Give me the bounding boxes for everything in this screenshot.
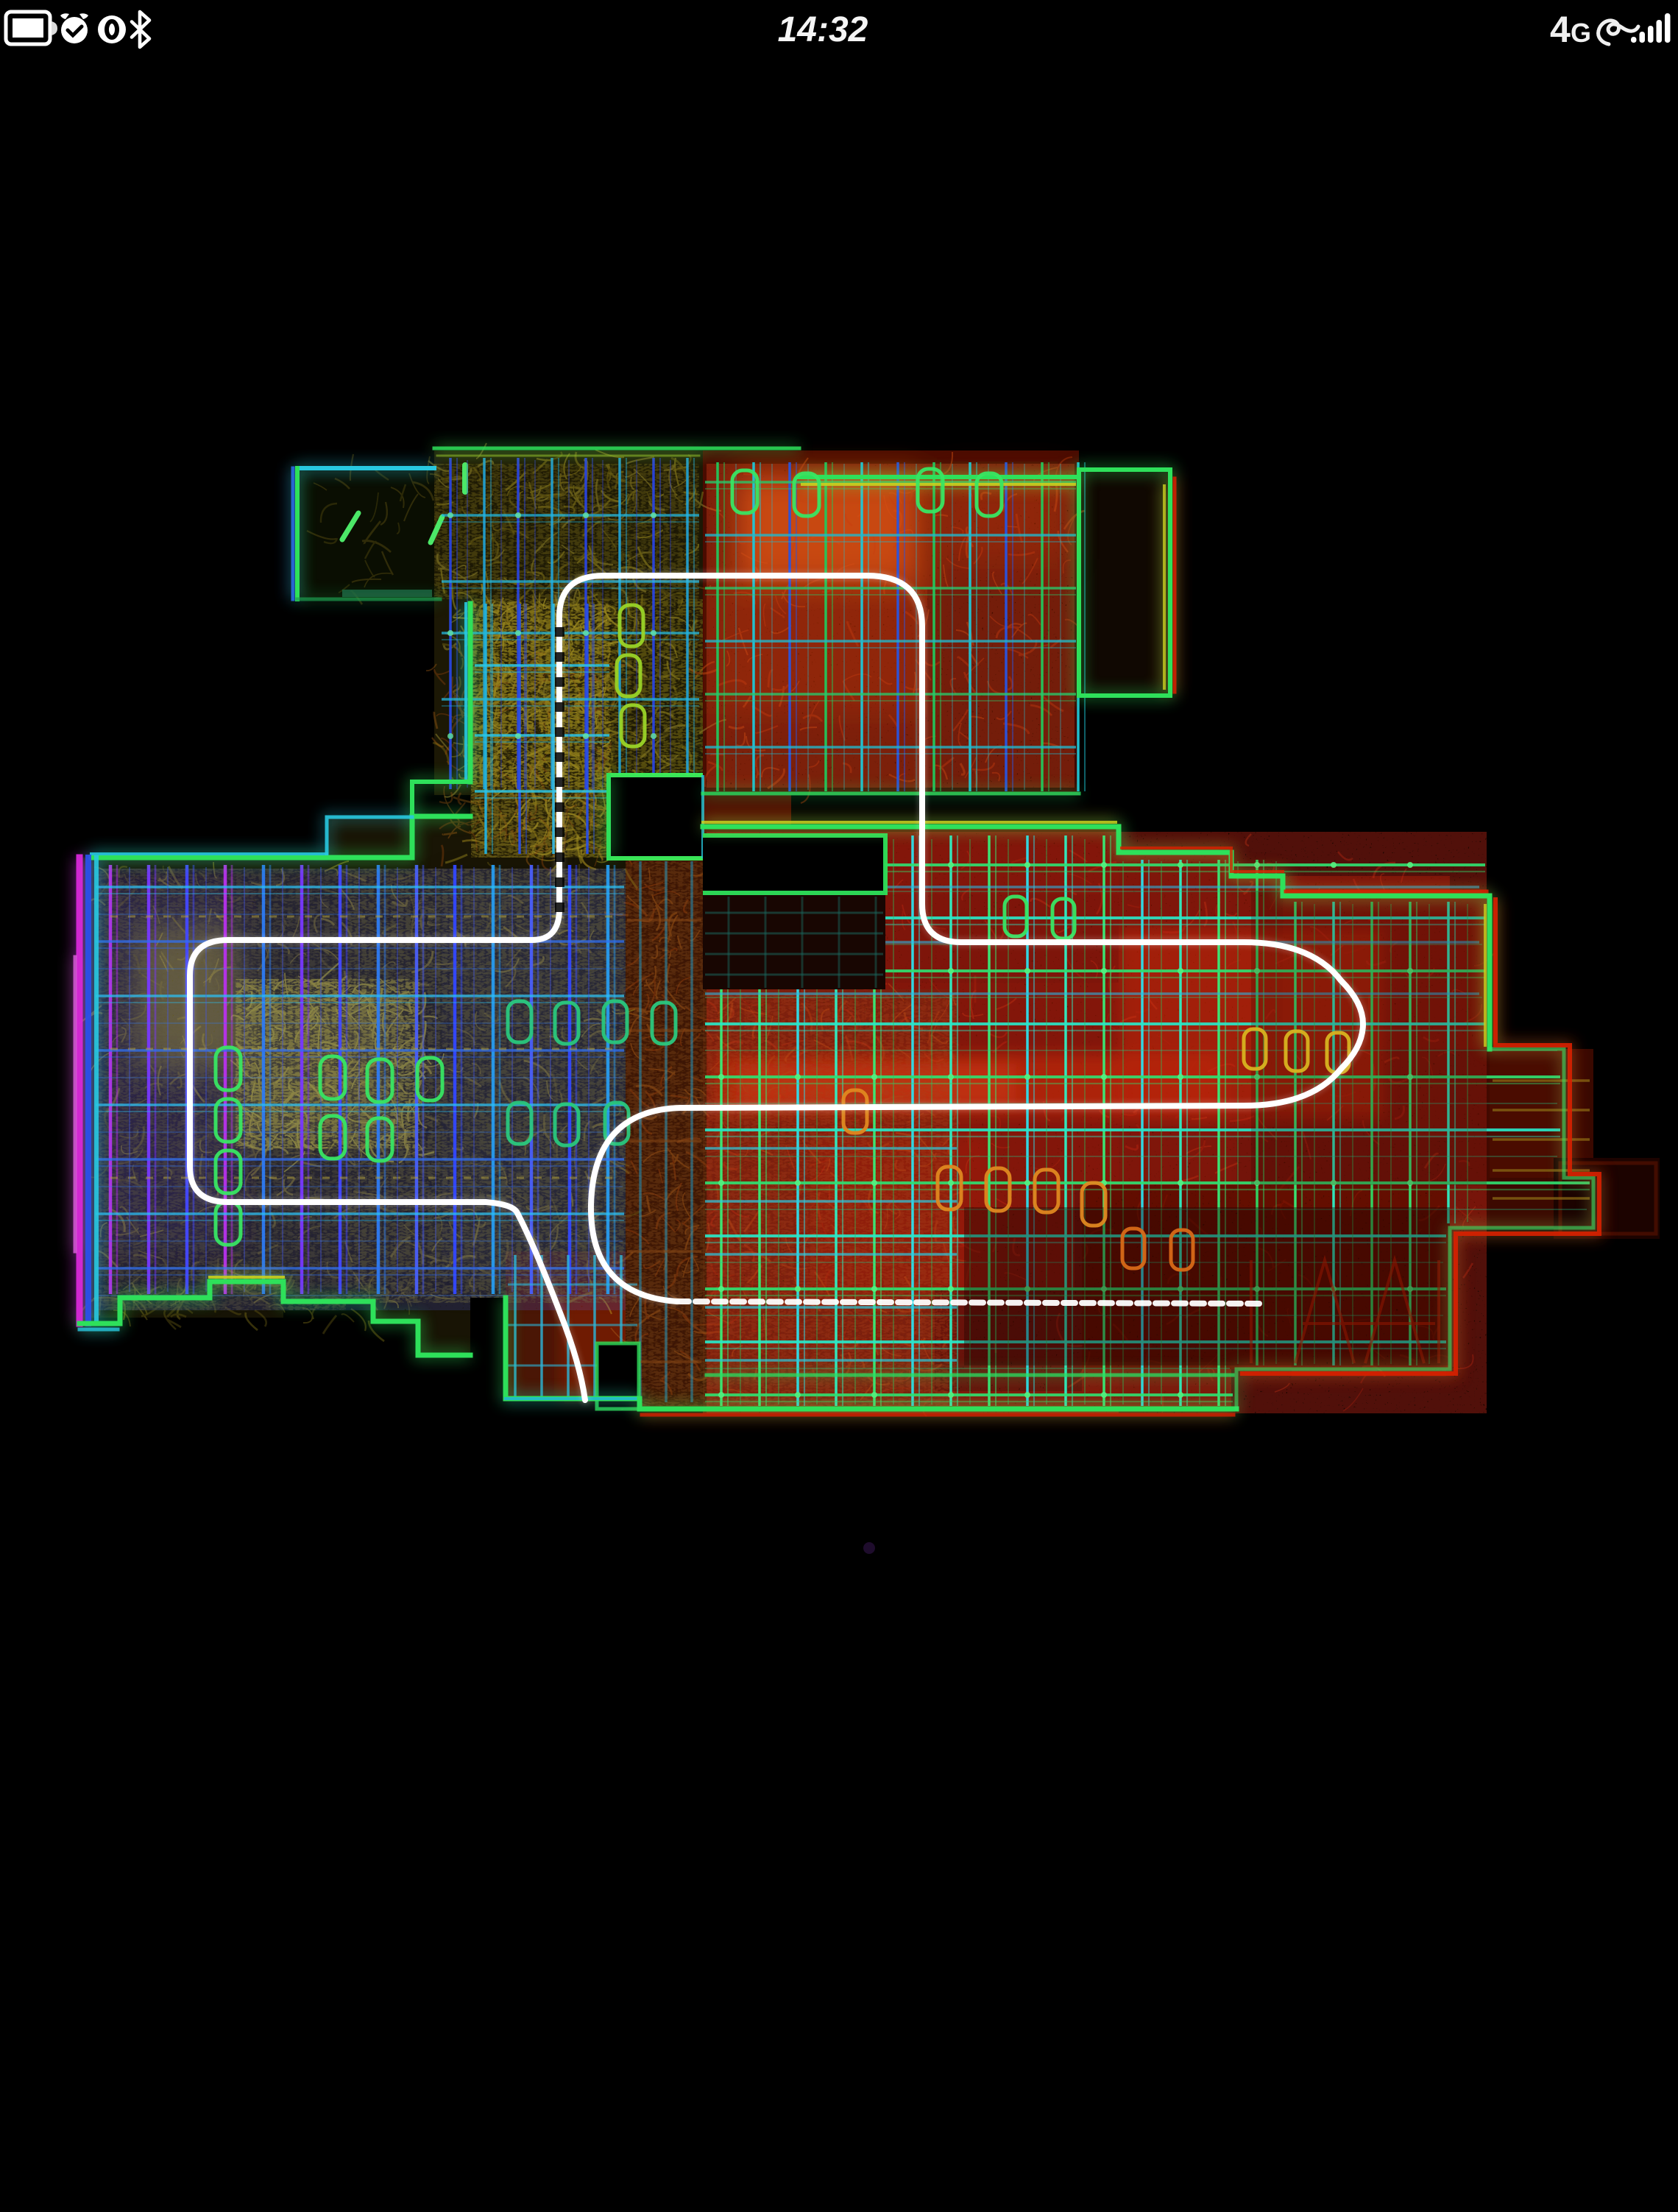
svg-text:4: 4 — [1550, 9, 1571, 50]
svg-text:14:32: 14:32 — [778, 10, 868, 49]
svg-text:G: G — [1571, 18, 1591, 48]
